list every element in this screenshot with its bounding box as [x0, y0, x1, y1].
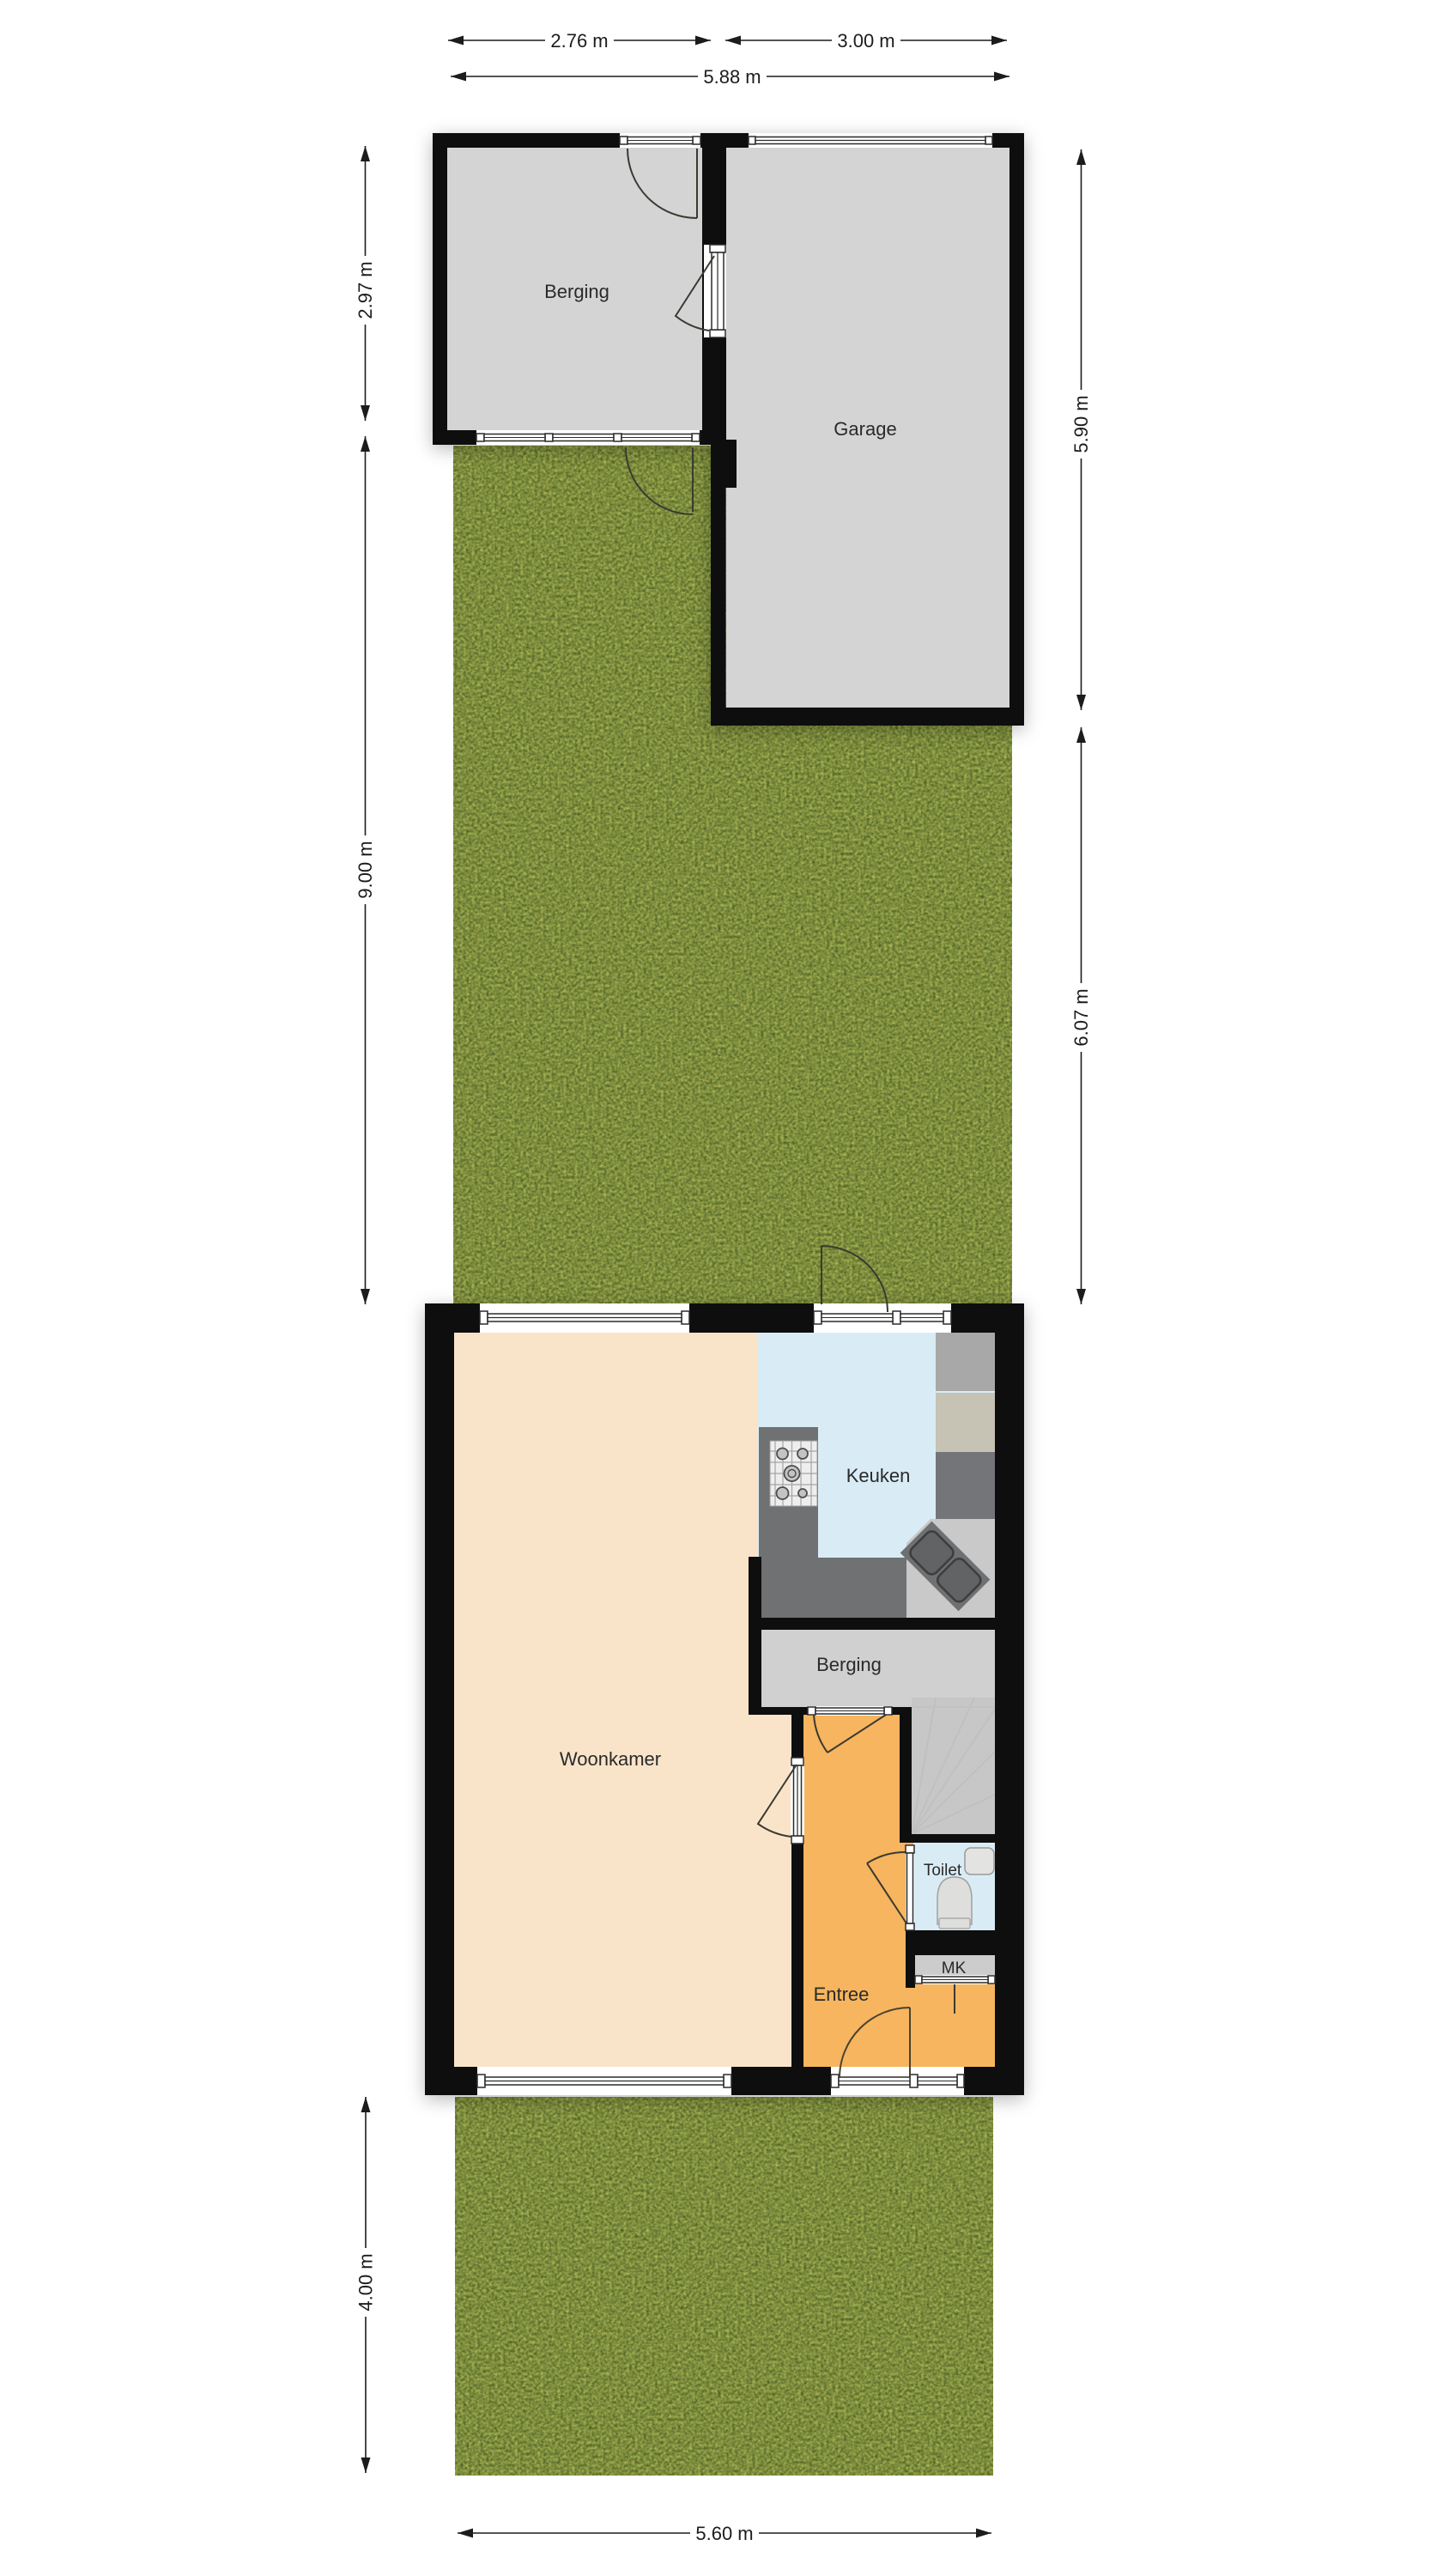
- svg-text:5.60 m: 5.60 m: [695, 2523, 753, 2544]
- svg-text:3.00 m: 3.00 m: [837, 30, 894, 52]
- svg-text:2.76 m: 2.76 m: [550, 30, 608, 52]
- svg-text:6.07 m: 6.07 m: [1070, 988, 1092, 1046]
- svg-text:Garage: Garage: [834, 418, 896, 440]
- svg-text:Berging: Berging: [816, 1654, 882, 1675]
- svg-text:5.88 m: 5.88 m: [703, 66, 761, 88]
- svg-text:Woonkamer: Woonkamer: [560, 1748, 661, 1770]
- svg-text:Entree: Entree: [814, 1984, 870, 2005]
- svg-text:9.00 m: 9.00 m: [355, 841, 376, 898]
- svg-text:Toilet: Toilet: [924, 1862, 962, 1880]
- svg-text:Berging: Berging: [544, 281, 609, 302]
- svg-text:5.90 m: 5.90 m: [1070, 395, 1092, 453]
- svg-text:2.97 m: 2.97 m: [355, 261, 376, 319]
- svg-text:MK: MK: [942, 1959, 967, 1978]
- svg-text:4.00 m: 4.00 m: [355, 2253, 377, 2311]
- svg-text:Keuken: Keuken: [846, 1465, 911, 1486]
